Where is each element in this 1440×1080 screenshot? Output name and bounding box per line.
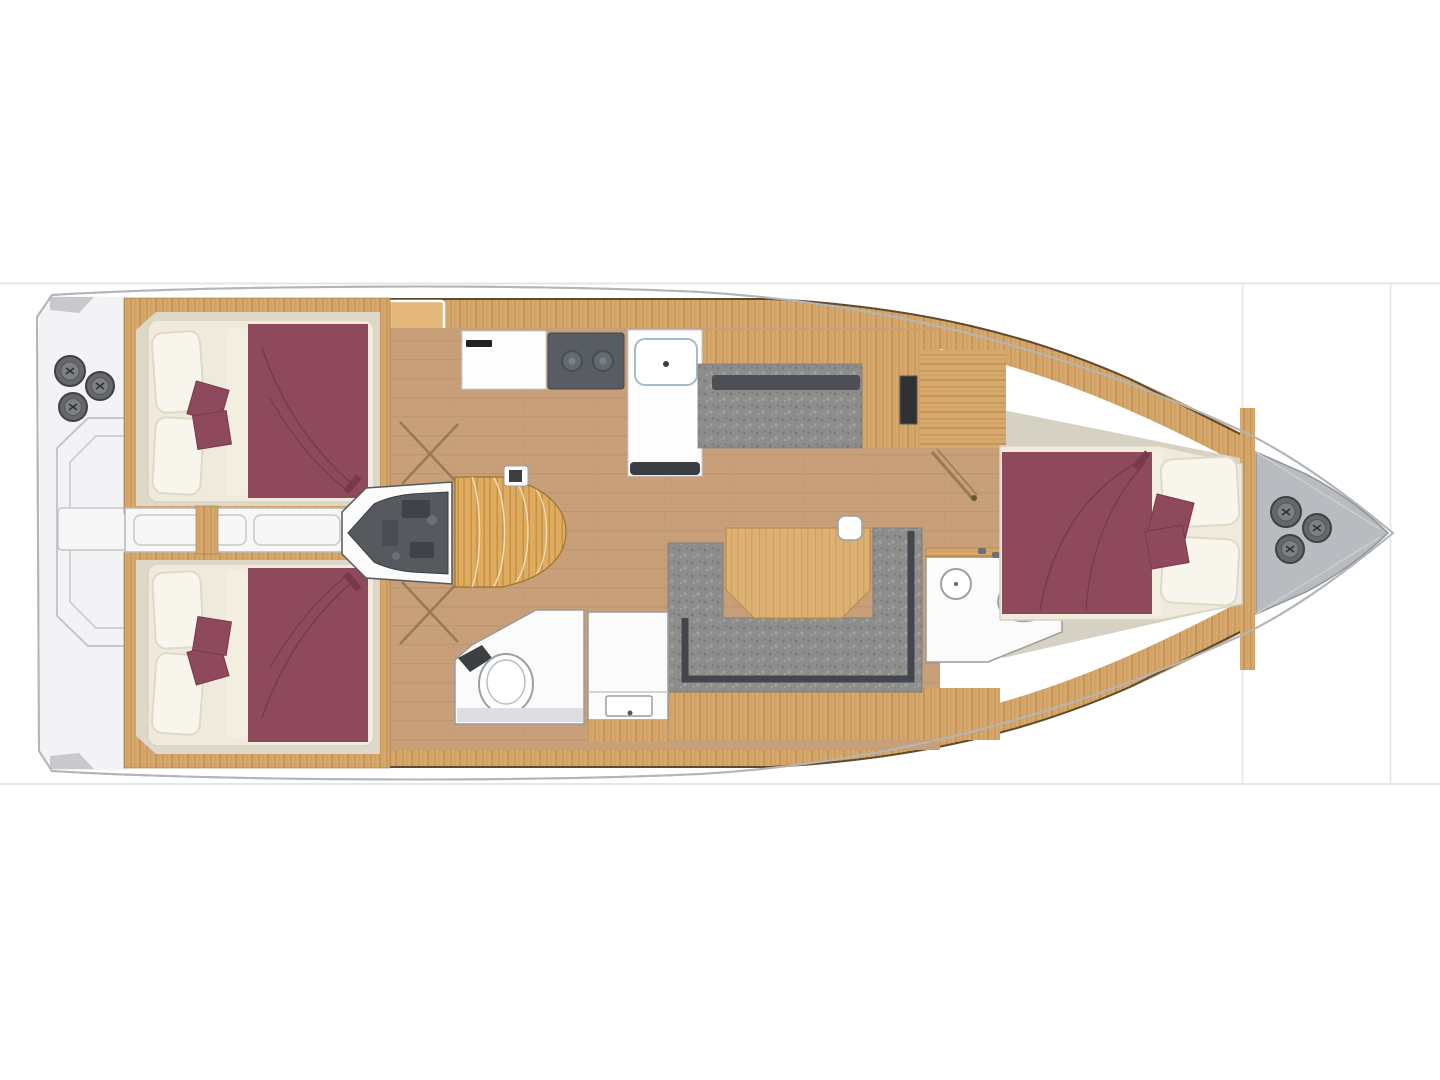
- winch-icon: [55, 356, 85, 386]
- winch-icon: [86, 372, 114, 400]
- aft-wood-shelf: [670, 688, 1000, 740]
- engine-detail: [382, 520, 398, 546]
- cushion: [1145, 525, 1189, 569]
- cushion: [193, 411, 232, 450]
- unit-base: [630, 462, 700, 475]
- basin-drain: [628, 711, 633, 716]
- engine-compartment: [342, 482, 452, 584]
- forward-bulkhead-cabinet: [920, 350, 1006, 448]
- berth-spread: [248, 324, 368, 498]
- burner-center: [569, 358, 576, 365]
- head-sill: [588, 720, 668, 742]
- cup: [838, 516, 862, 540]
- winch-icon: [1303, 514, 1331, 542]
- berth-spread: [1002, 452, 1152, 614]
- mast-foot: [509, 470, 522, 482]
- engine-detail: [402, 500, 430, 518]
- berth-runner: [226, 328, 248, 496]
- winch-icon: [1276, 535, 1304, 563]
- transom-walkway: [58, 508, 128, 550]
- worktop-vent: [466, 340, 492, 347]
- berth-runner: [226, 570, 248, 738]
- cushion: [193, 617, 232, 656]
- saloon-bench-sofa: [698, 364, 862, 448]
- passage-sill: [196, 506, 218, 554]
- berth-spread: [248, 568, 368, 742]
- page: [0, 0, 1440, 1080]
- bench-sofa-backrest: [712, 375, 860, 390]
- door-hinge: [978, 548, 986, 554]
- engine-detail: [392, 552, 400, 560]
- saloon-table: [726, 528, 870, 618]
- aft-cabin-port: [124, 552, 390, 768]
- sink-drain: [663, 361, 669, 367]
- room-threshold: [457, 708, 583, 722]
- engine-detail: [427, 515, 437, 525]
- center-passage: [125, 506, 347, 554]
- winch-icon: [59, 393, 87, 421]
- door-hinge: [992, 552, 1000, 558]
- cabinet-locker-slot: [900, 376, 917, 424]
- yacht-floor-plan: [0, 0, 1440, 1080]
- engine-detail: [410, 542, 434, 558]
- winch-icon: [1271, 497, 1301, 527]
- aft-cabin-starboard: [124, 298, 390, 514]
- basin-drain: [954, 582, 958, 586]
- burner-center: [600, 358, 607, 365]
- galley-worktop: [462, 331, 546, 389]
